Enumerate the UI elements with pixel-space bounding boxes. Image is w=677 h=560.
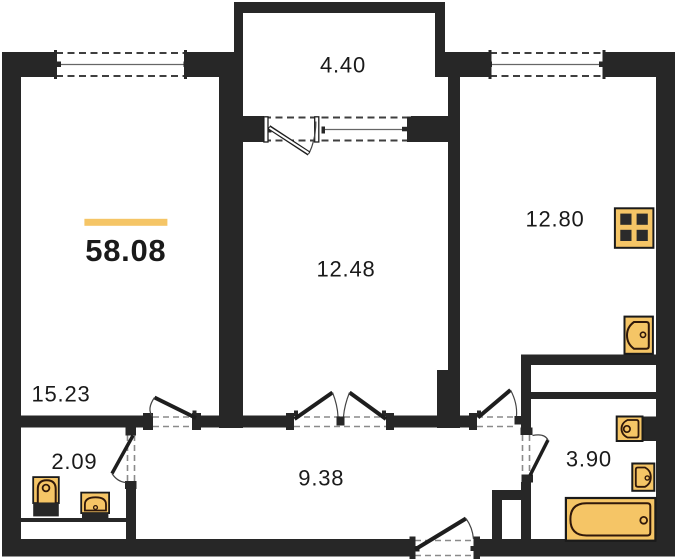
svg-text:2.09: 2.09	[51, 449, 97, 474]
svg-text:12.48: 12.48	[316, 257, 375, 282]
svg-text:3.90: 3.90	[566, 446, 612, 471]
svg-text:9.38: 9.38	[298, 466, 344, 491]
svg-text:4.40: 4.40	[320, 53, 366, 78]
svg-text:15.23: 15.23	[31, 381, 90, 406]
svg-text:12.80: 12.80	[525, 207, 584, 232]
svg-text:58.08: 58.08	[85, 233, 166, 268]
